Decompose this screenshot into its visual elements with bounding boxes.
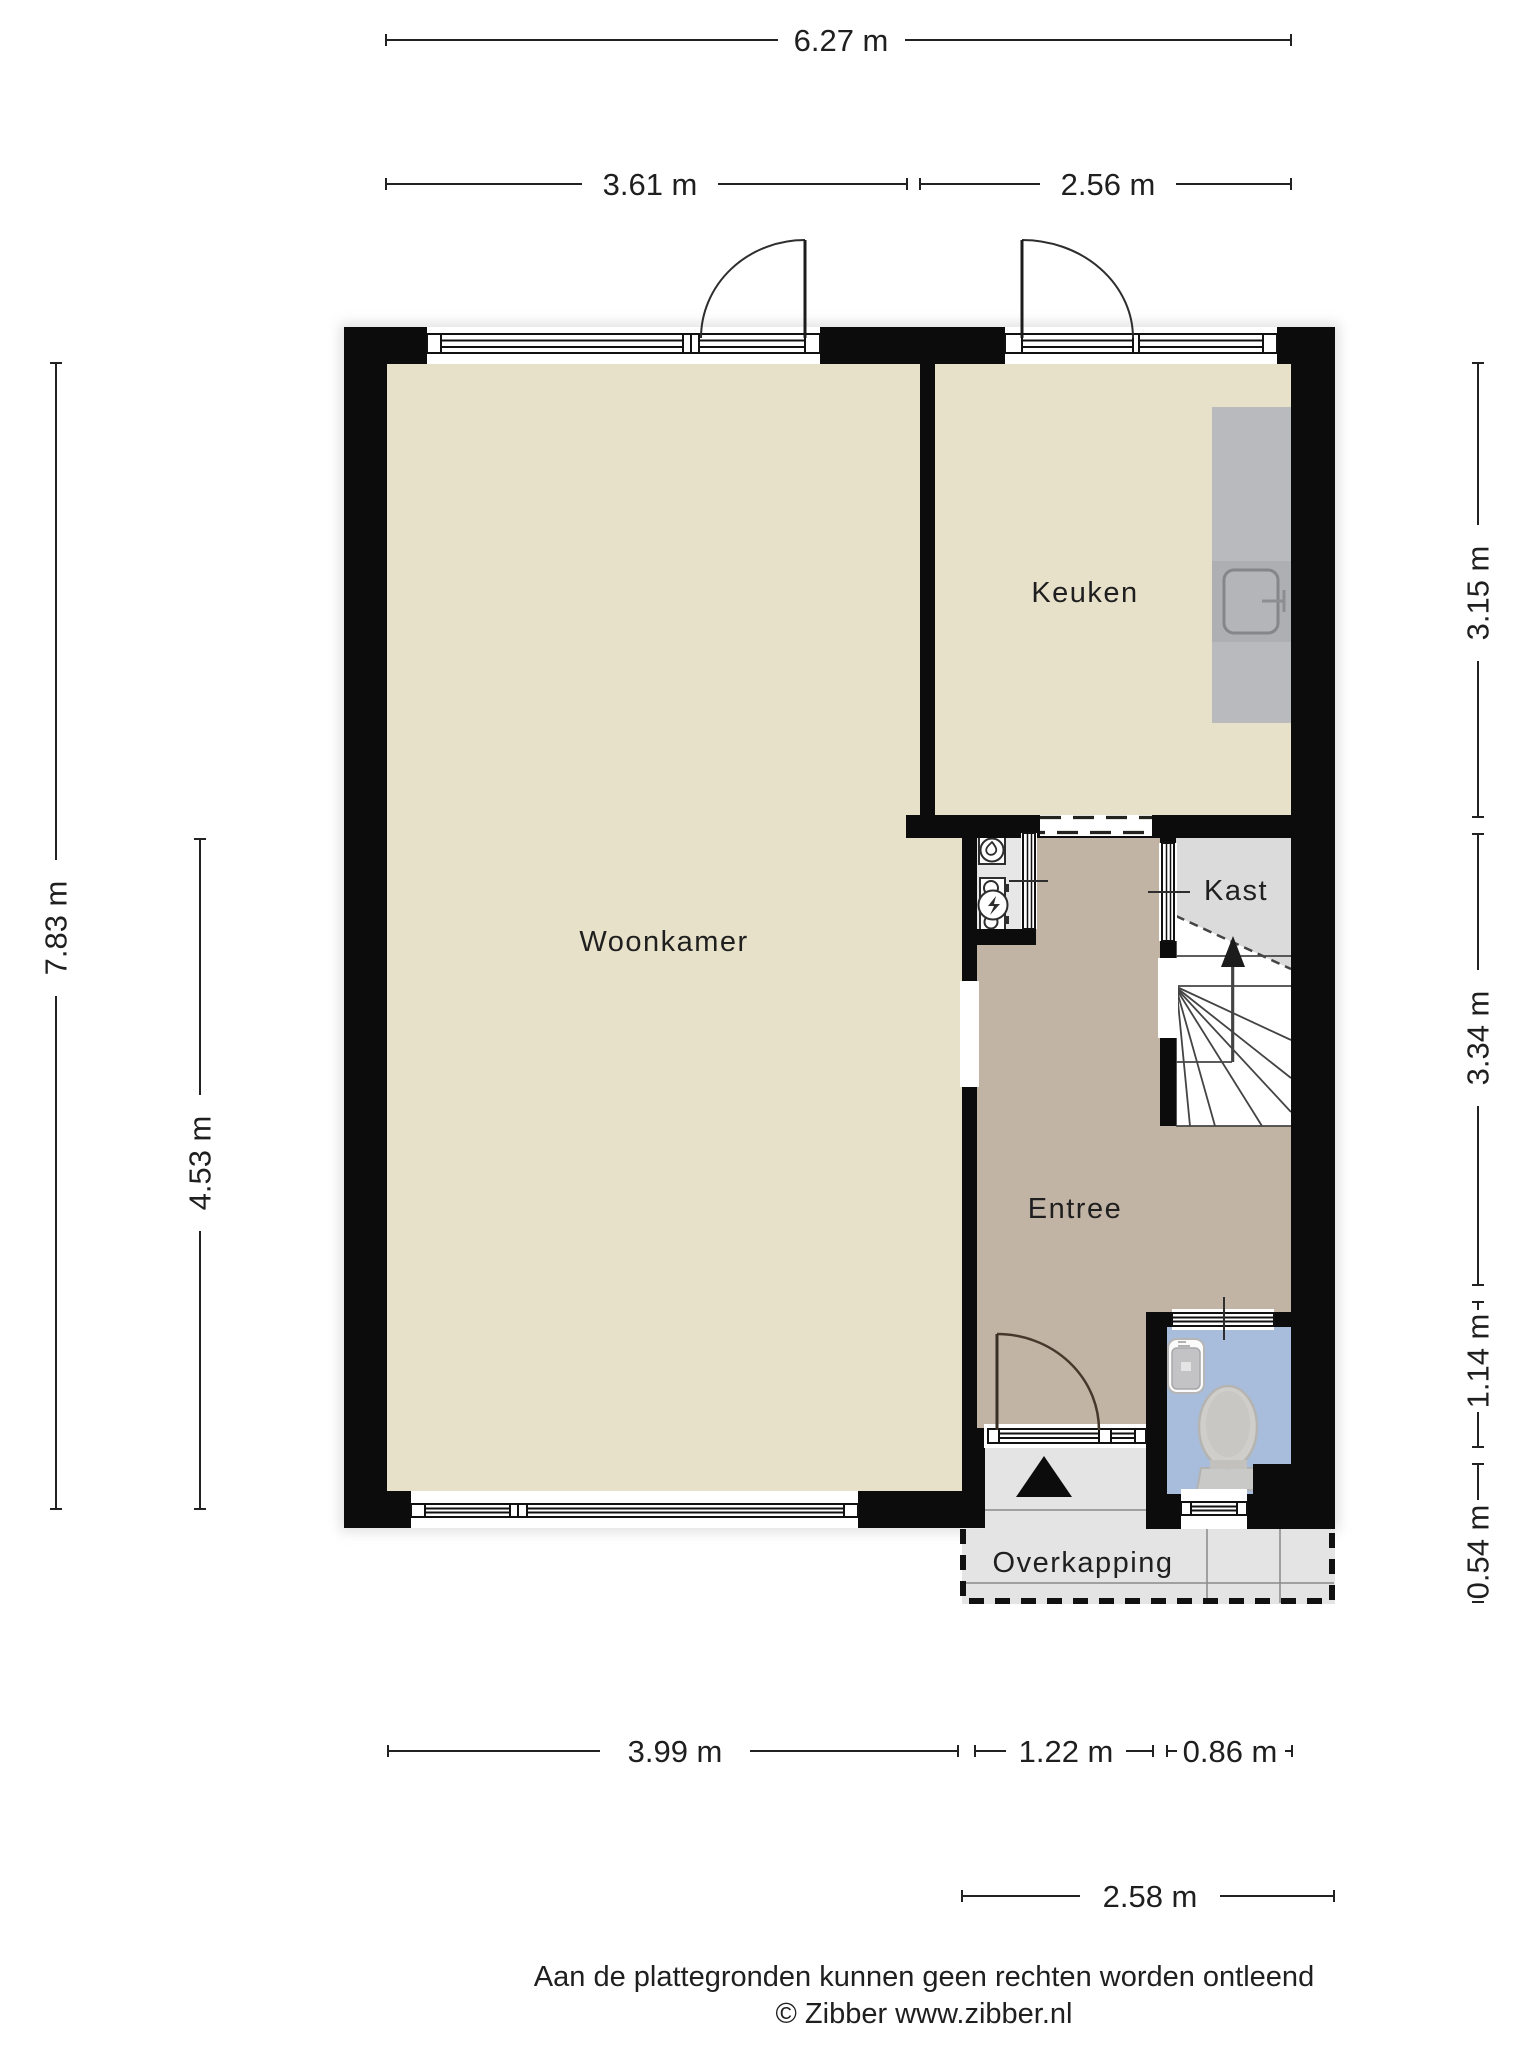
svg-text:Kast: Kast	[1204, 875, 1268, 907]
svg-text:Woonkamer: Woonkamer	[579, 926, 748, 958]
svg-text:Keuken: Keuken	[1031, 577, 1138, 609]
svg-text:Aan de plattegronden kunnen ge: Aan de plattegronden kunnen geen rechten…	[534, 1961, 1314, 1993]
svg-text:Overkapping: Overkapping	[993, 1547, 1174, 1579]
svg-text:2.58 m: 2.58 m	[1103, 1879, 1198, 1914]
svg-text:1.14 m: 1.14 m	[1461, 1314, 1496, 1409]
svg-text:3.34 m: 3.34 m	[1461, 991, 1496, 1086]
svg-text:0.86 m: 0.86 m	[1183, 1734, 1278, 1769]
svg-text:2.56 m: 2.56 m	[1061, 167, 1156, 202]
svg-text:3.99 m: 3.99 m	[628, 1734, 723, 1769]
svg-text:7.83 m: 7.83 m	[39, 881, 74, 976]
svg-text:4.53 m: 4.53 m	[183, 1116, 218, 1211]
svg-text:6.27 m: 6.27 m	[794, 23, 889, 58]
svg-text:3.61 m: 3.61 m	[603, 167, 698, 202]
svg-text:Entree: Entree	[1028, 1193, 1122, 1225]
svg-text:1.22 m: 1.22 m	[1019, 1734, 1114, 1769]
svg-text:© Zibber www.zibber.nl: © Zibber www.zibber.nl	[776, 1998, 1073, 2030]
svg-text:3.15 m: 3.15 m	[1461, 546, 1496, 641]
svg-text:0.54 m: 0.54 m	[1461, 1505, 1496, 1600]
